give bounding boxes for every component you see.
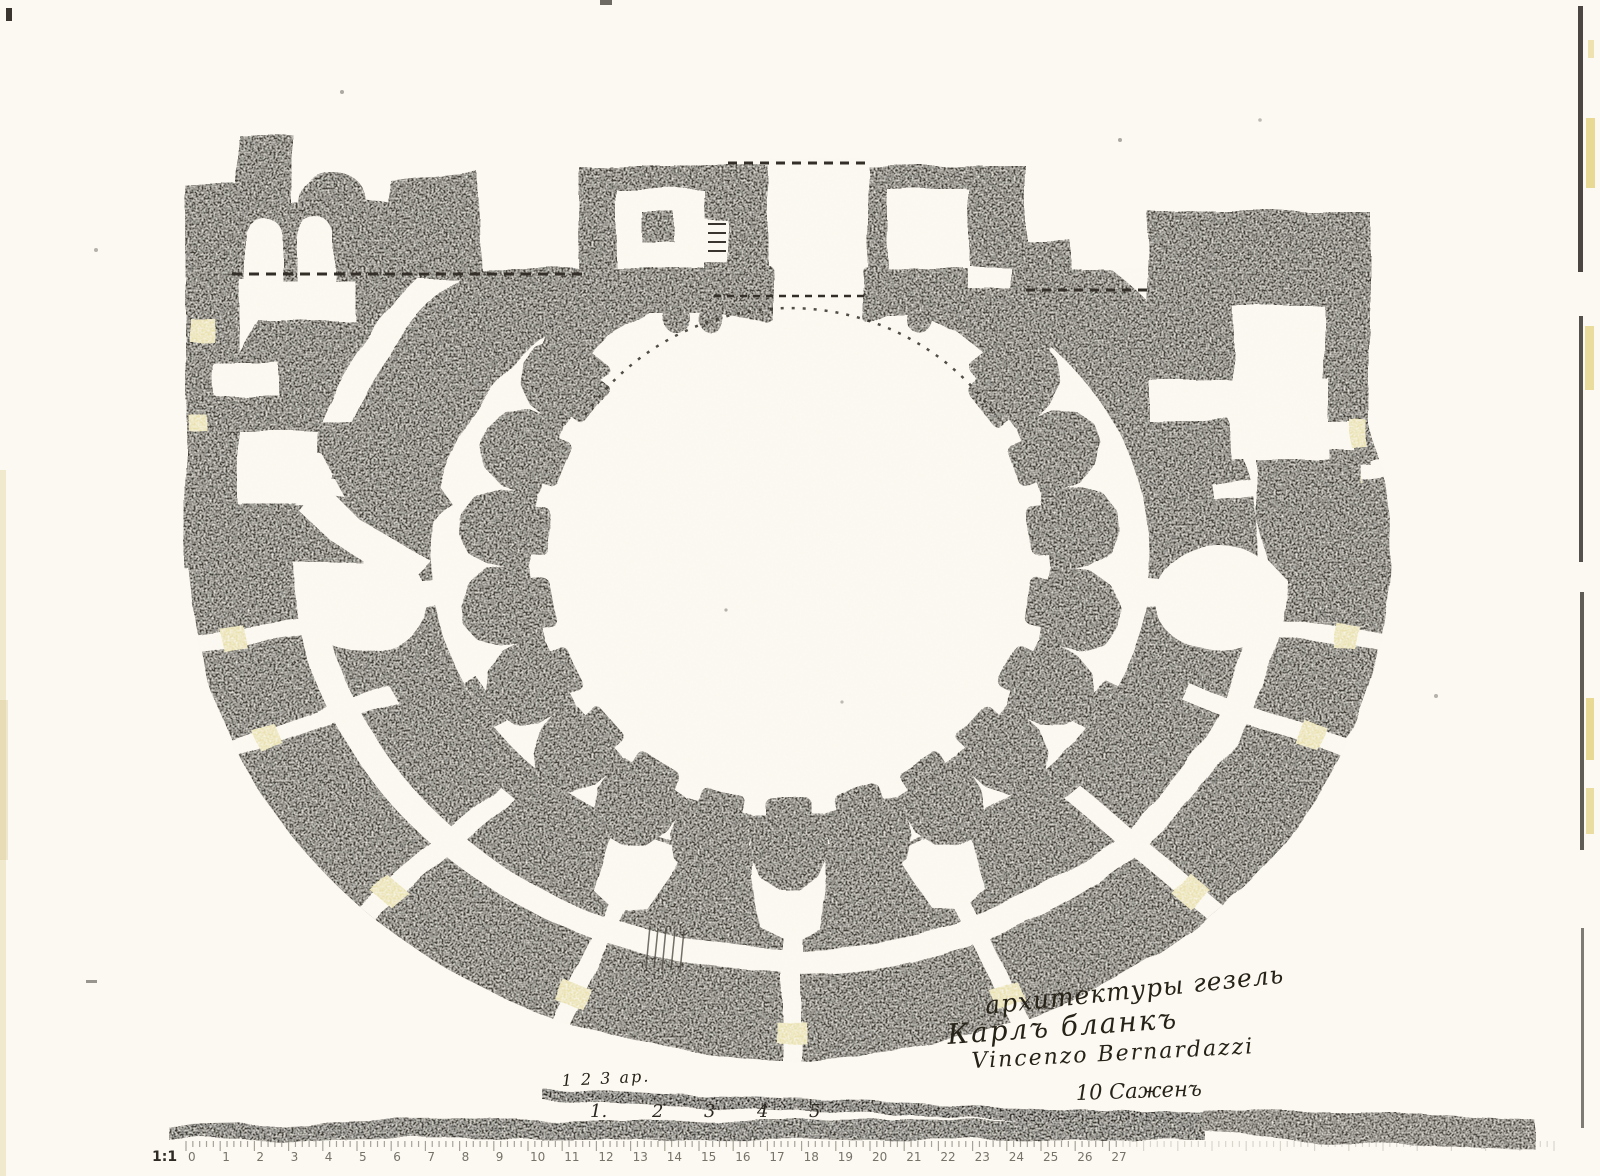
scan-edge-right xyxy=(1578,6,1595,1128)
svg-text:7: 7 xyxy=(427,1150,435,1164)
svg-text:27: 27 xyxy=(1111,1150,1126,1164)
svg-text:12: 12 xyxy=(598,1150,613,1164)
pier-instance xyxy=(463,569,551,648)
plan-drawing xyxy=(168,51,1535,1149)
svg-text:11: 11 xyxy=(564,1150,579,1164)
pier-instance xyxy=(757,806,823,884)
left-wing-room xyxy=(238,430,326,504)
pier-instance xyxy=(1029,569,1117,648)
svg-text:2: 2 xyxy=(256,1150,264,1164)
svg-text:5: 5 xyxy=(809,1101,820,1122)
scale-note: 10 Саженъ xyxy=(1075,1077,1202,1105)
svg-text:26: 26 xyxy=(1077,1150,1092,1164)
svg-text:13: 13 xyxy=(633,1150,648,1164)
svg-text:1.: 1. xyxy=(590,1101,607,1122)
ruler-ticks xyxy=(186,1141,1554,1151)
right-pavilion-room xyxy=(888,190,970,268)
scanner-ruler: 0123456789101112131415161718192021222324… xyxy=(152,1141,1554,1165)
ruler-band xyxy=(168,1119,1205,1140)
svg-text:15: 15 xyxy=(701,1150,716,1164)
entrance-gap xyxy=(770,158,868,308)
svg-text:14: 14 xyxy=(667,1150,682,1164)
floor-plan-drawing: архитектуры гезель Карлъ бланкъ Vincenzo… xyxy=(0,0,1600,1176)
ruler-numbers: 0123456789101112131415161718192021222324… xyxy=(188,1150,1127,1164)
svg-text:20: 20 xyxy=(872,1150,887,1164)
svg-text:22: 22 xyxy=(940,1150,955,1164)
left-pavilion-pier xyxy=(644,214,676,244)
scanned-floor-plan-page: архитектуры гезель Карлъ бланкъ Vincenzo… xyxy=(0,0,1600,1176)
svg-text:9: 9 xyxy=(496,1150,504,1164)
pier-instance xyxy=(1033,491,1117,565)
svg-text:6: 6 xyxy=(393,1150,401,1164)
wall-patch xyxy=(1352,422,1368,448)
svg-text:25: 25 xyxy=(1043,1150,1058,1164)
svg-text:16: 16 xyxy=(735,1150,750,1164)
svg-text:19: 19 xyxy=(838,1150,853,1164)
scale-bar-top-label: 1 2 3 ар. xyxy=(561,1066,651,1090)
svg-text:24: 24 xyxy=(1009,1150,1024,1164)
svg-text:21: 21 xyxy=(906,1150,921,1164)
svg-text:4: 4 xyxy=(325,1150,333,1164)
arch-opening xyxy=(244,217,282,280)
scan-edge-left xyxy=(0,8,97,1176)
svg-text:10: 10 xyxy=(530,1150,545,1164)
pier-instance xyxy=(462,491,546,565)
svg-text:23: 23 xyxy=(975,1150,990,1164)
svg-text:1: 1 xyxy=(222,1150,230,1164)
ruler-scale-label: 1:1 xyxy=(152,1149,177,1165)
svg-text:5: 5 xyxy=(359,1150,367,1164)
svg-text:8: 8 xyxy=(462,1150,470,1164)
svg-text:2: 2 xyxy=(651,1101,663,1122)
wall-patch xyxy=(188,414,206,430)
svg-text:0: 0 xyxy=(188,1150,196,1164)
wall-patch xyxy=(190,318,214,342)
svg-text:18: 18 xyxy=(804,1150,819,1164)
svg-text:3: 3 xyxy=(704,1101,715,1122)
svg-text:3: 3 xyxy=(291,1150,299,1164)
svg-text:4: 4 xyxy=(756,1101,768,1122)
arch-opening xyxy=(296,217,334,280)
svg-text:17: 17 xyxy=(769,1150,784,1164)
